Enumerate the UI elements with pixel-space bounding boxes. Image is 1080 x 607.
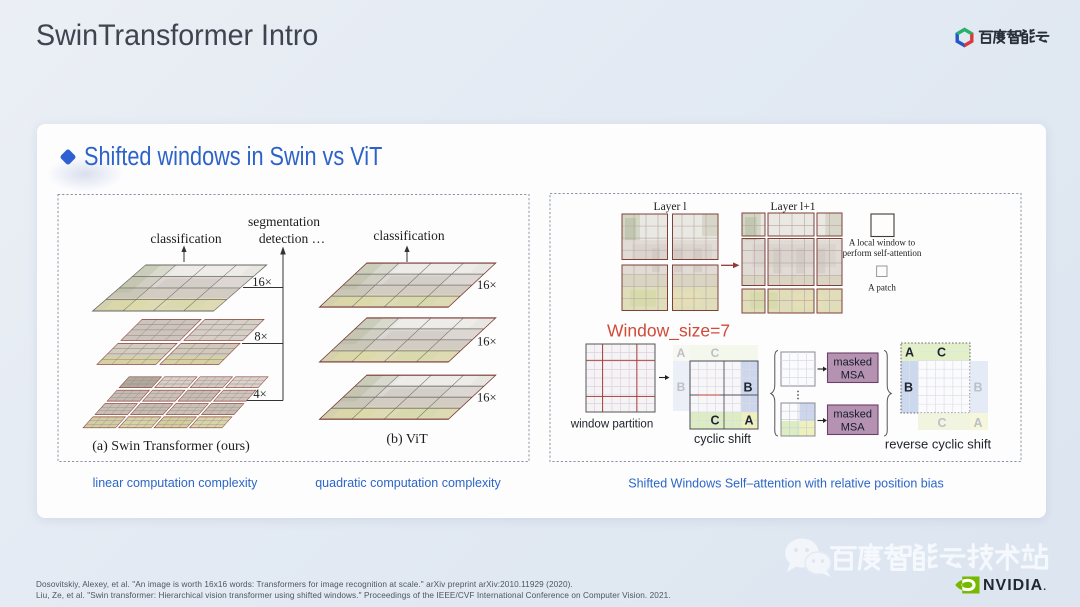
svg-text:8×: 8× xyxy=(254,330,267,344)
svg-text:Shifted Windows Self–attention: Shifted Windows Self–attention with rela… xyxy=(628,477,943,491)
svg-text:detection …: detection … xyxy=(259,231,325,246)
svg-text:C: C xyxy=(937,346,946,360)
svg-text:A: A xyxy=(744,414,753,428)
svg-text:MSA: MSA xyxy=(841,370,866,382)
svg-text:Window_size=7: Window_size=7 xyxy=(607,321,730,342)
svg-text:B: B xyxy=(904,381,913,395)
svg-text:B: B xyxy=(743,381,752,395)
svg-text:(b) ViT: (b) ViT xyxy=(386,432,428,447)
svg-text:A local window to: A local window to xyxy=(849,238,916,248)
svg-text:A: A xyxy=(973,416,982,430)
svg-text:cyclic shift: cyclic shift xyxy=(694,432,751,446)
svg-text:C: C xyxy=(710,414,719,428)
svg-text:MSA: MSA xyxy=(841,422,866,434)
svg-text:A: A xyxy=(677,346,686,360)
svg-text:C: C xyxy=(937,416,946,430)
svg-text:(a) Swin Transformer (ours): (a) Swin Transformer (ours) xyxy=(92,439,250,454)
svg-text:16×: 16× xyxy=(477,278,497,292)
svg-text:quadratic computation complexi: quadratic computation complexity xyxy=(315,476,501,490)
svg-text:16×: 16× xyxy=(477,335,497,349)
svg-text:16×: 16× xyxy=(252,275,272,289)
svg-text:perform self-attention: perform self-attention xyxy=(843,248,922,258)
svg-text:16×: 16× xyxy=(477,391,497,405)
svg-text:linear computation complexity: linear computation complexity xyxy=(93,476,258,490)
svg-text:classification: classification xyxy=(150,231,221,246)
svg-text:segmentation: segmentation xyxy=(248,214,320,229)
svg-text:C: C xyxy=(711,346,720,360)
svg-text:Layer l+1: Layer l+1 xyxy=(770,201,815,213)
svg-text:reverse cyclic shift: reverse cyclic shift xyxy=(885,437,992,452)
svg-text:A: A xyxy=(905,346,914,360)
svg-text:A patch: A patch xyxy=(868,283,896,293)
svg-text:window partition: window partition xyxy=(570,419,653,431)
svg-text:classification: classification xyxy=(373,228,444,243)
svg-text:masked: masked xyxy=(833,409,872,421)
svg-text:B: B xyxy=(677,380,686,394)
svg-text:4×: 4× xyxy=(253,387,266,401)
svg-text:masked: masked xyxy=(833,357,872,369)
svg-text:B: B xyxy=(973,381,982,395)
svg-text:Layer l: Layer l xyxy=(654,201,687,213)
